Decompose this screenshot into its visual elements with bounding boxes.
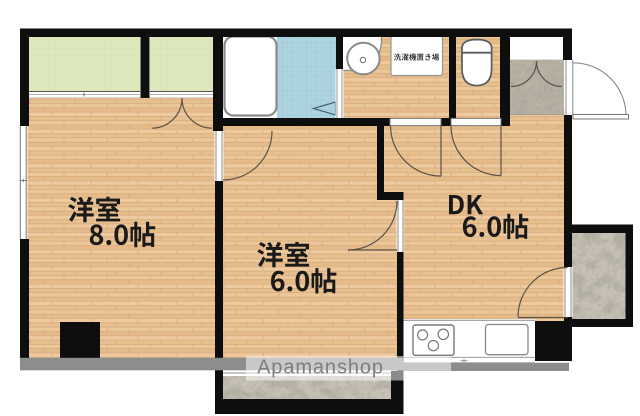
svg-text:Apamanshop: Apamanshop [257,357,384,379]
